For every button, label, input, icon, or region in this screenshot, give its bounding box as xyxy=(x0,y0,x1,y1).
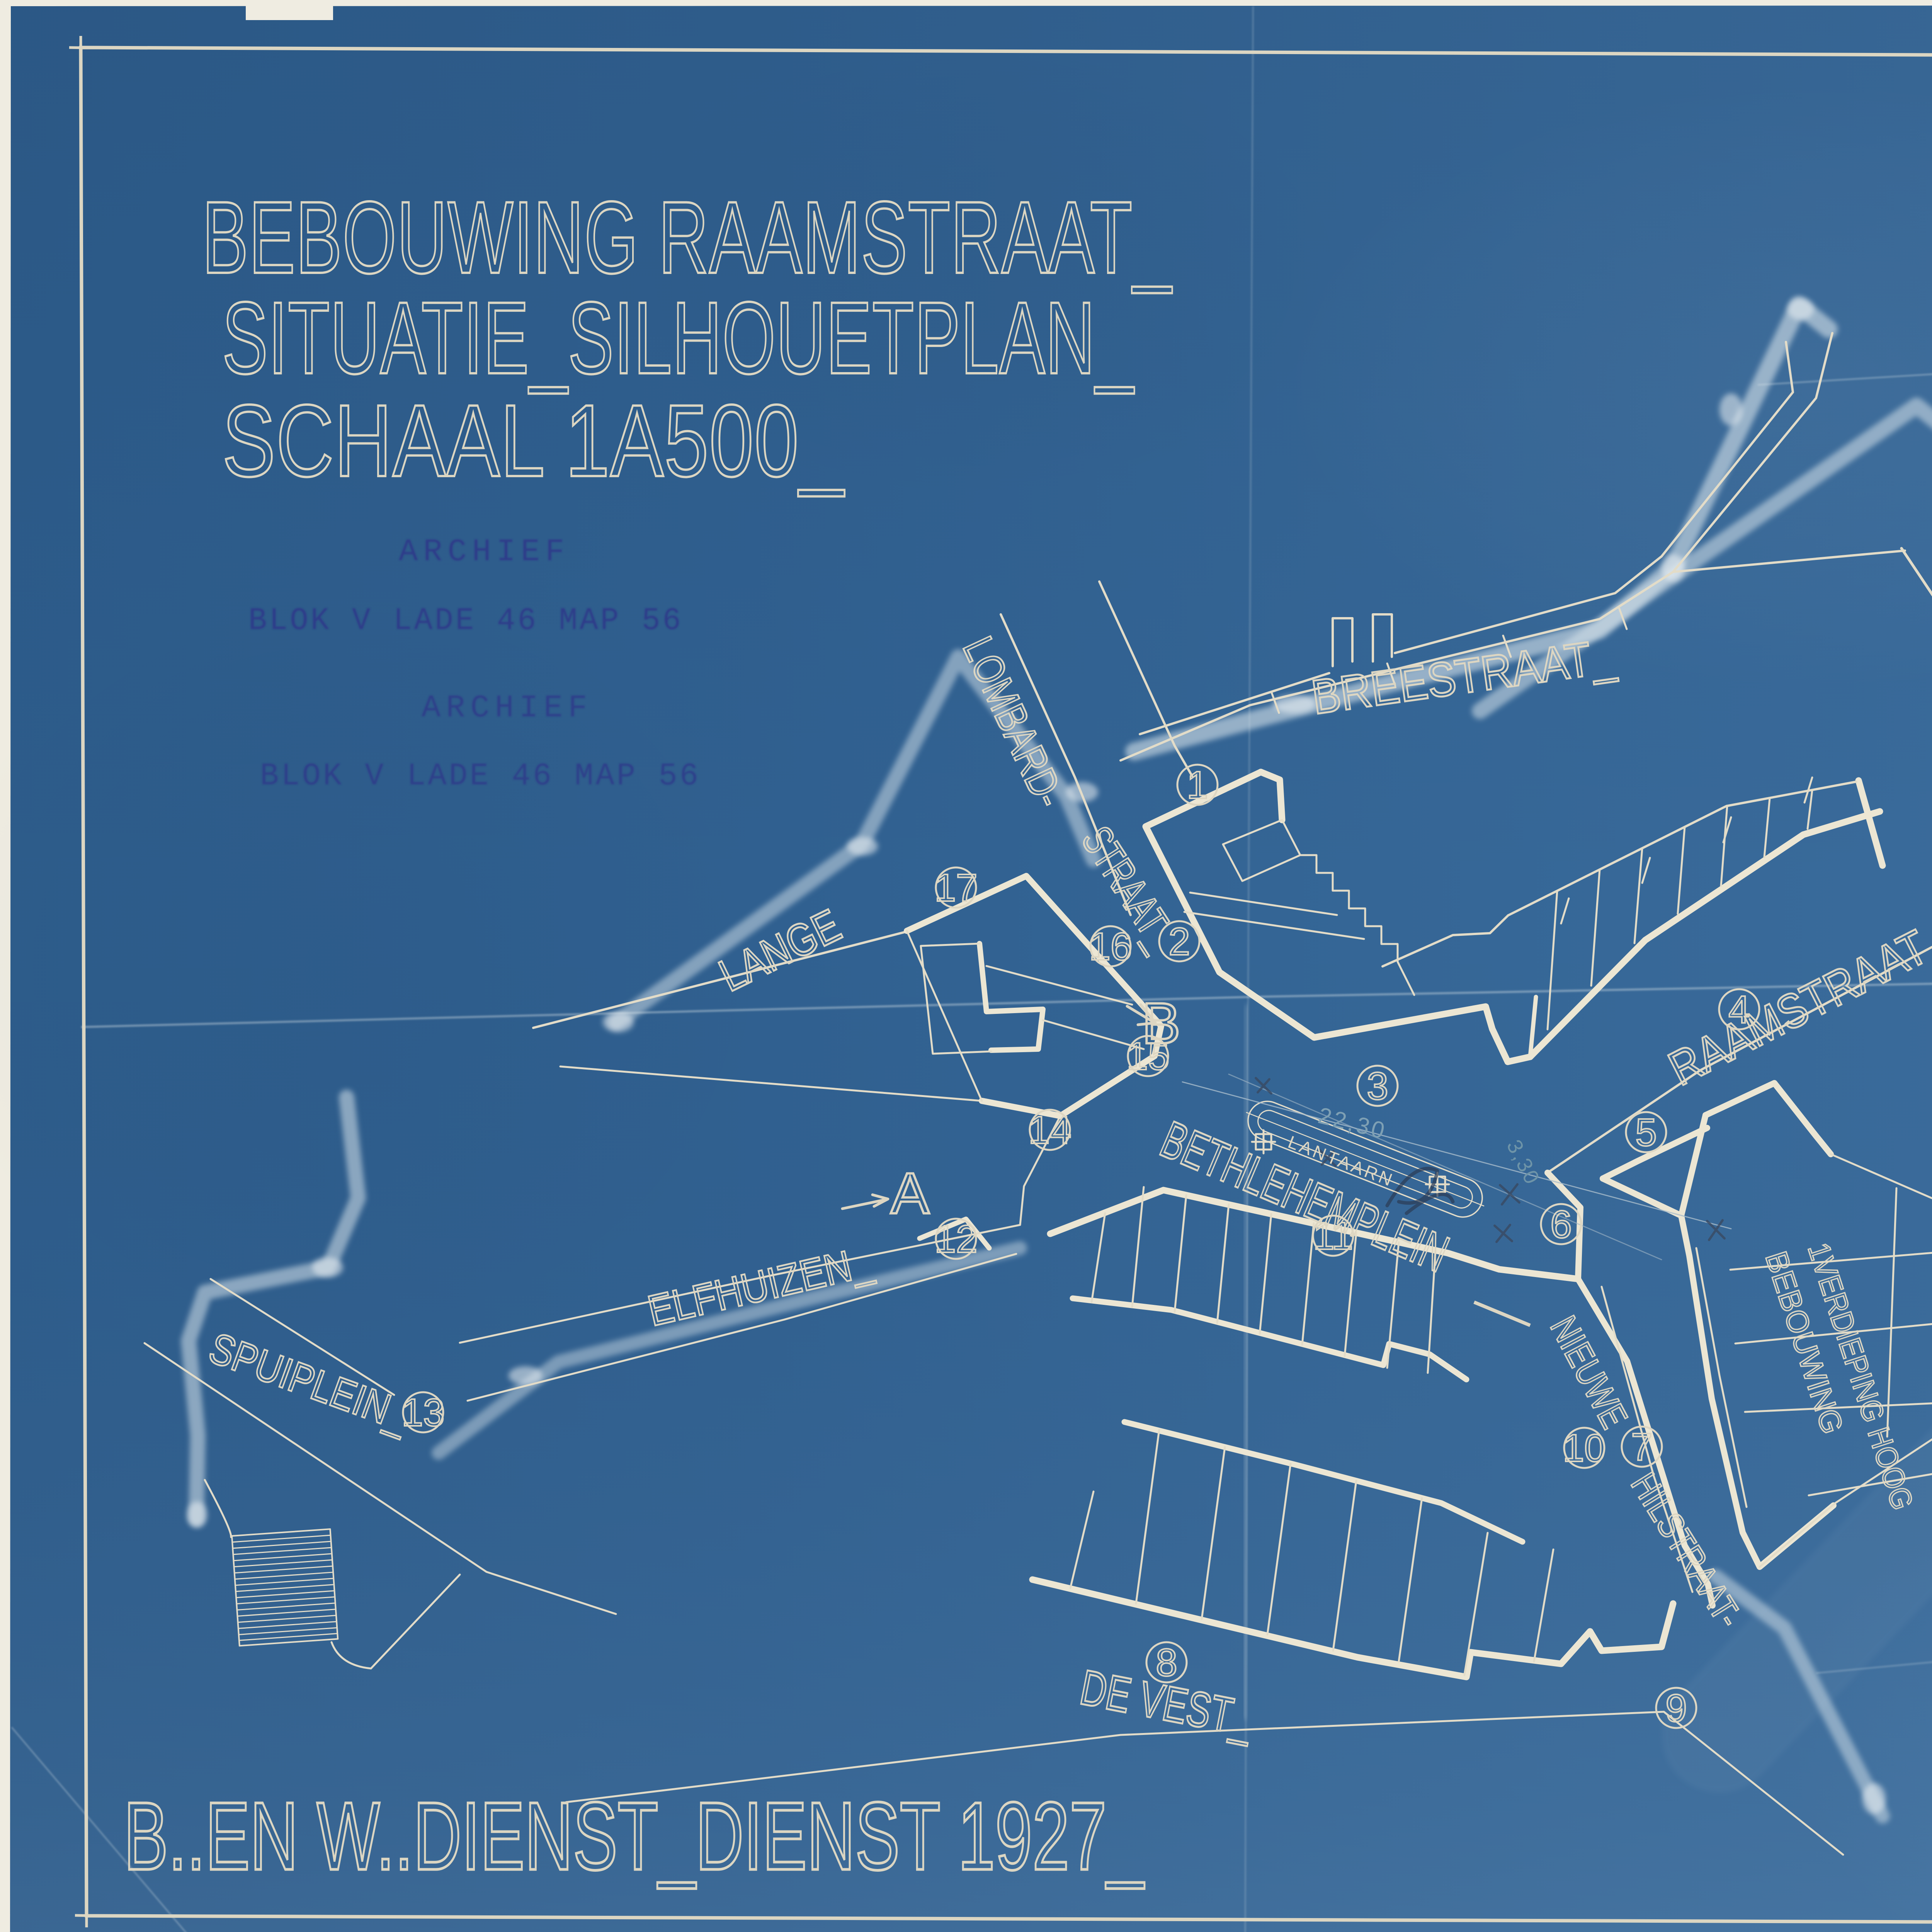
svg-text:12: 12 xyxy=(934,1218,977,1261)
svg-text:BLOK V LADE 46 MAP 56: BLOK V LADE 46 MAP 56 xyxy=(260,758,701,794)
svg-text:17: 17 xyxy=(934,866,977,910)
svg-text:9: 9 xyxy=(1665,1687,1687,1730)
svg-text:BEBOUWING RAAMSTRAAT_: BEBOUWING RAAMSTRAAT_ xyxy=(202,180,1173,295)
svg-text:3: 3 xyxy=(1367,1065,1388,1108)
svg-text:10: 10 xyxy=(1563,1427,1605,1470)
svg-text:15: 15 xyxy=(1126,1035,1169,1078)
svg-text:BLOK V LADE 46 MAP 56: BLOK V LADE 46 MAP 56 xyxy=(248,603,683,639)
svg-text:SITUATIE_SILHOUETPLAN_: SITUATIE_SILHOUETPLAN_ xyxy=(222,281,1135,395)
svg-text:ARCHIEF: ARCHIEF xyxy=(422,690,592,726)
svg-text:5: 5 xyxy=(1635,1111,1657,1154)
svg-text:6: 6 xyxy=(1550,1203,1572,1246)
svg-text:8: 8 xyxy=(1156,1641,1177,1684)
svg-text:B..EN W..DIENST_DIENST 1927_: B..EN W..DIENST_DIENST 1927_ xyxy=(124,1782,1145,1890)
svg-text:4: 4 xyxy=(1728,988,1750,1031)
svg-text:A: A xyxy=(891,1161,929,1226)
svg-text:7: 7 xyxy=(1631,1425,1653,1469)
svg-text:11: 11 xyxy=(1313,1214,1353,1258)
svg-text:SCHAAL 1A500_: SCHAAL 1A500_ xyxy=(222,384,845,498)
svg-text:1: 1 xyxy=(1187,764,1208,807)
svg-text:2: 2 xyxy=(1168,920,1190,963)
svg-text:14: 14 xyxy=(1028,1109,1071,1152)
svg-text:16: 16 xyxy=(1089,925,1132,968)
svg-text:ARCHIEF: ARCHIEF xyxy=(399,534,570,570)
svg-text:13: 13 xyxy=(401,1391,444,1434)
